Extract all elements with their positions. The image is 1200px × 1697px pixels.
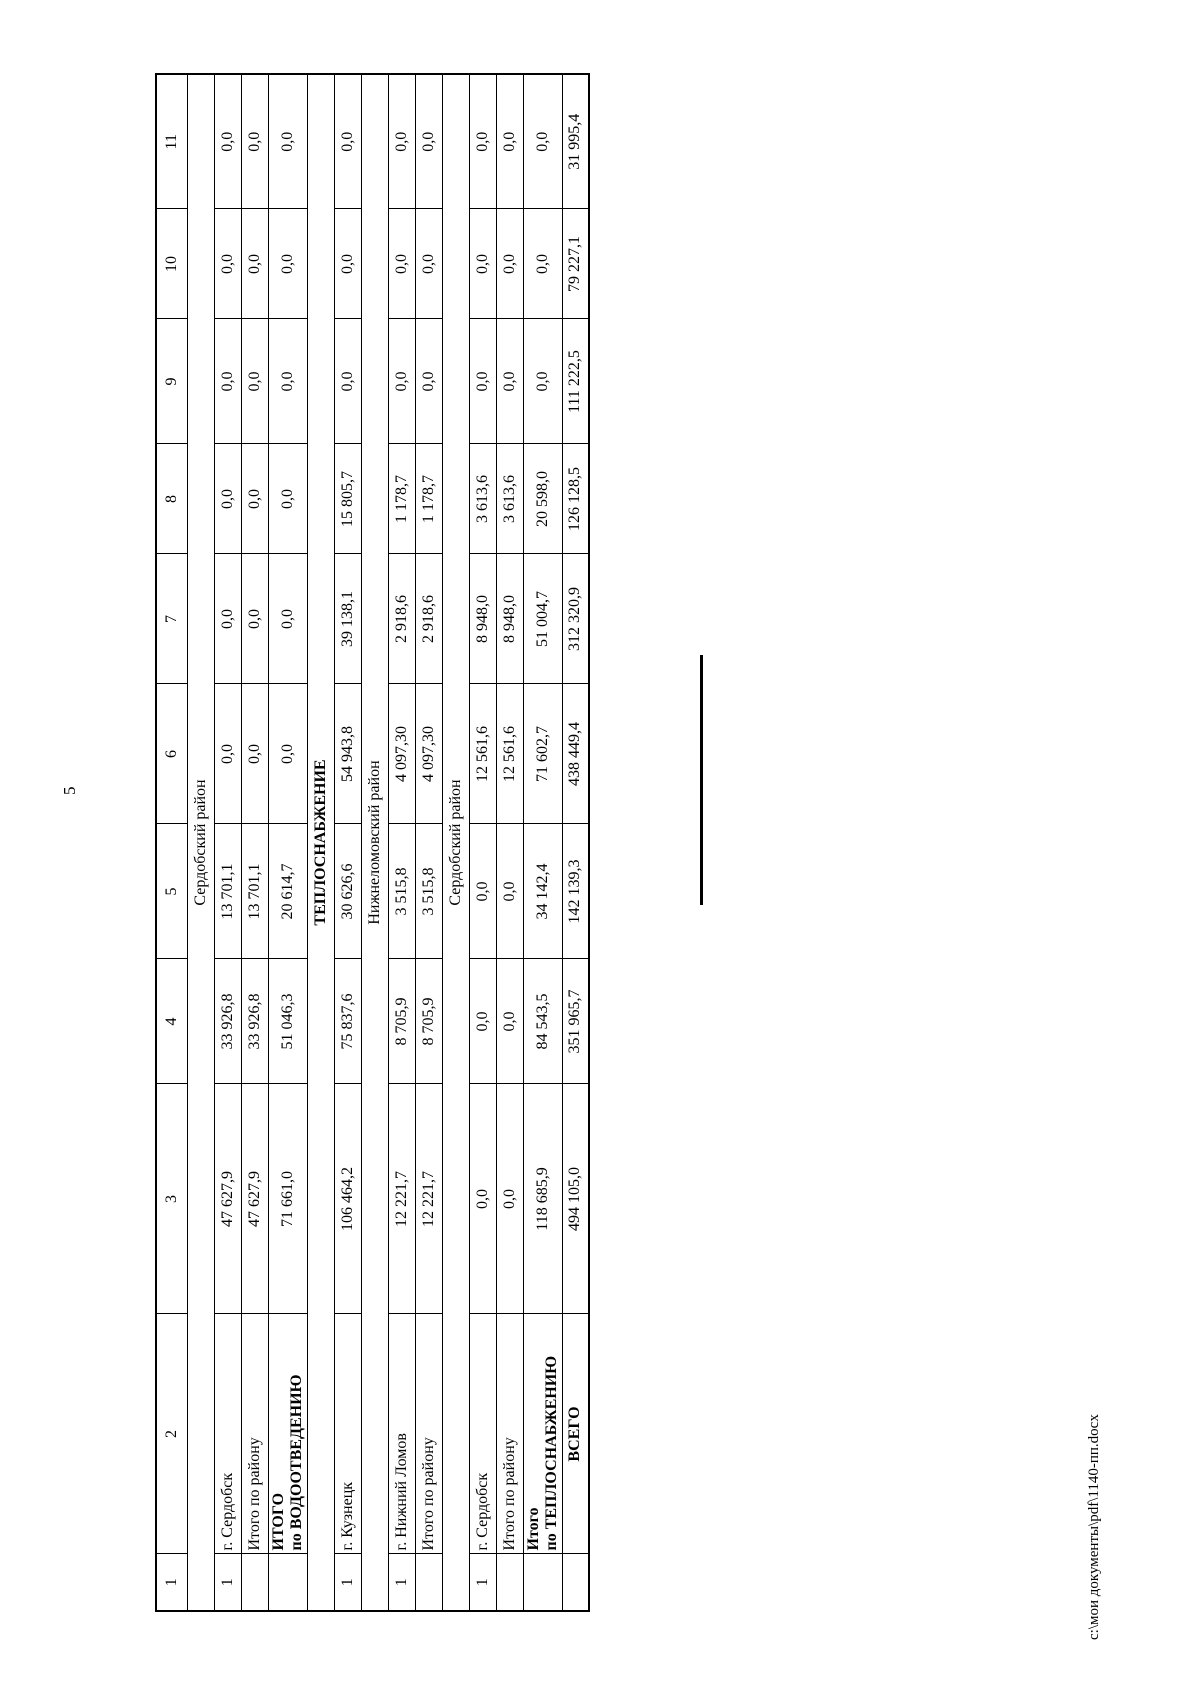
value-cell: 0,0 (388, 209, 415, 319)
row-number-cell (415, 1554, 442, 1611)
value-cell: 3 515,8 (388, 824, 415, 959)
table-row: Итого по району47 627,933 926,813 701,10… (242, 74, 269, 1611)
value-cell: 0,0 (269, 554, 308, 684)
value-cell: 47 627,9 (215, 1084, 242, 1314)
section-row: Сердобский район (442, 74, 469, 1611)
row-label-cell: г. Нижний Ломов (388, 1314, 415, 1554)
table-row: 1г. Кузнецк106 464,275 837,630 626,654 9… (334, 74, 361, 1611)
value-cell: 15 805,7 (334, 444, 361, 554)
table-row: Итогопо ТЕПЛОСНАБЖЕНИЮ118 685,984 543,53… (523, 74, 562, 1611)
section-label: ТЕПЛОСНАБЖЕНИЕ (307, 74, 334, 1611)
value-cell: 0,0 (469, 959, 496, 1084)
value-cell: 0,0 (469, 74, 496, 209)
value-cell: 0,0 (269, 684, 308, 824)
row-label-line: ИТОГО (270, 1318, 288, 1551)
value-cell: 51 046,3 (269, 959, 308, 1084)
value-cell: 312 320,9 (562, 554, 589, 684)
value-cell: 31 995,4 (562, 74, 589, 209)
header-row: 1234567891011 (156, 74, 188, 1611)
value-cell: 8 705,9 (415, 959, 442, 1084)
table-row: Итого по району0,00,00,012 561,68 948,03… (496, 74, 523, 1611)
row-label-cell: ИТОГОпо ВОДООТВЕДЕНИЮ (269, 1314, 308, 1554)
row-label-cell: г. Сердобск (215, 1314, 242, 1554)
value-cell: 34 142,4 (523, 824, 562, 959)
column-header: 1 (156, 1554, 188, 1611)
table-row: Итого по району12 221,78 705,93 515,84 0… (415, 74, 442, 1611)
value-cell: 3 613,6 (496, 444, 523, 554)
column-header: 8 (156, 444, 188, 554)
value-cell: 0,0 (496, 959, 523, 1084)
value-cell: 0,0 (469, 824, 496, 959)
value-cell: 0,0 (334, 74, 361, 209)
value-cell: 0,0 (215, 74, 242, 209)
row-label-cell: ВСЕГО (562, 1314, 589, 1554)
value-cell: 4 097,30 (388, 684, 415, 824)
value-cell: 0,0 (496, 319, 523, 444)
value-cell: 0,0 (496, 74, 523, 209)
table-row: 1г. Сердобск47 627,933 926,813 701,10,00… (215, 74, 242, 1611)
separator-line (700, 655, 703, 905)
value-cell: 12 561,6 (496, 684, 523, 824)
value-cell: 84 543,5 (523, 959, 562, 1084)
value-cell: 142 139,3 (562, 824, 589, 959)
value-cell: 0,0 (242, 209, 269, 319)
value-cell: 0,0 (469, 209, 496, 319)
row-number-cell (523, 1554, 562, 1611)
table-row: 1г. Сердобск0,00,00,012 561,68 948,03 61… (469, 74, 496, 1611)
value-cell: 1 178,7 (388, 444, 415, 554)
row-number-cell (496, 1554, 523, 1611)
value-cell: 0,0 (496, 1084, 523, 1314)
value-cell: 0,0 (415, 209, 442, 319)
value-cell: 0,0 (334, 319, 361, 444)
row-label-line: по ТЕПЛОСНАБЖЕНИЮ (543, 1318, 561, 1551)
value-cell: 47 627,9 (242, 1084, 269, 1314)
value-cell: 0,0 (269, 74, 308, 209)
row-label-cell: Итого по району (496, 1314, 523, 1554)
page-number: 5 (60, 787, 80, 796)
report-table: 1234567891011Сердобский район1г. Сердобс… (155, 73, 590, 1612)
row-label-line: Итого по району (501, 1318, 519, 1551)
value-cell: 0,0 (496, 824, 523, 959)
value-cell: 0,0 (215, 554, 242, 684)
row-number-cell: 1 (334, 1554, 361, 1611)
row-number-cell: 1 (388, 1554, 415, 1611)
column-header: 3 (156, 1084, 188, 1314)
row-label-line: г. Сердобск (474, 1318, 492, 1551)
row-number-cell (242, 1554, 269, 1611)
value-cell: 4 097,30 (415, 684, 442, 824)
value-cell: 0,0 (242, 319, 269, 444)
table-row: ИТОГОпо ВОДООТВЕДЕНИЮ71 661,051 046,320 … (269, 74, 308, 1611)
table-row: 1г. Нижний Ломов12 221,78 705,93 515,84 … (388, 74, 415, 1611)
value-cell: 0,0 (523, 319, 562, 444)
row-label-line: г. Сердобск (219, 1318, 237, 1551)
value-cell: 20 614,7 (269, 824, 308, 959)
value-cell: 13 701,1 (215, 824, 242, 959)
value-cell: 111 222,5 (562, 319, 589, 444)
value-cell: 12 561,6 (469, 684, 496, 824)
column-header: 2 (156, 1314, 188, 1554)
value-cell: 39 138,1 (334, 554, 361, 684)
column-header: 5 (156, 824, 188, 959)
row-label-cell: г. Кузнецк (334, 1314, 361, 1554)
value-cell: 33 926,8 (215, 959, 242, 1084)
value-cell: 0,0 (215, 444, 242, 554)
row-label-cell: Итого по району (242, 1314, 269, 1554)
column-header: 11 (156, 74, 188, 209)
value-cell: 20 598,0 (523, 444, 562, 554)
value-cell: 13 701,1 (242, 824, 269, 959)
value-cell: 0,0 (415, 74, 442, 209)
value-cell: 33 926,8 (242, 959, 269, 1084)
value-cell: 0,0 (415, 319, 442, 444)
value-cell: 118 685,9 (523, 1084, 562, 1314)
row-number-cell (269, 1554, 308, 1611)
value-cell: 0,0 (215, 319, 242, 444)
table-row: ВСЕГО494 105,0351 965,7142 139,3438 449,… (562, 74, 589, 1611)
value-cell: 71 661,0 (269, 1084, 308, 1314)
value-cell: 0,0 (242, 74, 269, 209)
value-cell: 0,0 (215, 684, 242, 824)
row-label-cell: Итогопо ТЕПЛОСНАБЖЕНИЮ (523, 1314, 562, 1554)
row-label-line: Итого по району (246, 1318, 264, 1551)
row-label-line: г. Кузнецк (339, 1318, 357, 1551)
value-cell: 0,0 (469, 319, 496, 444)
row-label-line: г. Нижний Ломов (393, 1318, 411, 1551)
value-cell: 2 918,6 (388, 554, 415, 684)
report-table-body: 1234567891011Сердобский район1г. Сердобс… (156, 74, 589, 1611)
value-cell: 126 128,5 (562, 444, 589, 554)
value-cell: 75 837,6 (334, 959, 361, 1084)
row-label-line: Итого по району (420, 1318, 438, 1551)
column-header: 7 (156, 554, 188, 684)
value-cell: 8 705,9 (388, 959, 415, 1084)
section-row: Сердобский район (188, 74, 215, 1611)
value-cell: 51 004,7 (523, 554, 562, 684)
row-label-cell: Итого по району (415, 1314, 442, 1554)
row-label-line: Итого (525, 1318, 543, 1551)
value-cell: 0,0 (523, 74, 562, 209)
value-cell: 30 626,6 (334, 824, 361, 959)
value-cell: 0,0 (269, 444, 308, 554)
value-cell: 0,0 (469, 1084, 496, 1314)
row-number-cell (562, 1554, 589, 1611)
column-header: 10 (156, 209, 188, 319)
section-label: Нижнеломовский район (361, 74, 388, 1611)
value-cell: 71 602,7 (523, 684, 562, 824)
value-cell: 54 943,8 (334, 684, 361, 824)
value-cell: 8 948,0 (469, 554, 496, 684)
value-cell: 0,0 (242, 444, 269, 554)
value-cell: 0,0 (388, 74, 415, 209)
value-cell: 79 227,1 (562, 209, 589, 319)
value-cell: 12 221,7 (415, 1084, 442, 1314)
column-header: 6 (156, 684, 188, 824)
value-cell: 0,0 (269, 319, 308, 444)
section-row: ТЕПЛОСНАБЖЕНИЕ (307, 74, 334, 1611)
value-cell: 0,0 (496, 209, 523, 319)
row-label-line: ВСЕГО (566, 1318, 584, 1551)
value-cell: 0,0 (215, 209, 242, 319)
section-row: Нижнеломовский район (361, 74, 388, 1611)
value-cell: 8 948,0 (496, 554, 523, 684)
value-cell: 494 105,0 (562, 1084, 589, 1314)
value-cell: 351 965,7 (562, 959, 589, 1084)
row-number-cell: 1 (215, 1554, 242, 1611)
value-cell: 3 613,6 (469, 444, 496, 554)
value-cell: 2 918,6 (415, 554, 442, 684)
value-cell: 0,0 (334, 209, 361, 319)
value-cell: 106 464,2 (334, 1084, 361, 1314)
section-label: Сердобский район (442, 74, 469, 1611)
section-label: Сердобский район (188, 74, 215, 1611)
row-label-cell: г. Сердобск (469, 1314, 496, 1554)
column-header: 4 (156, 959, 188, 1084)
row-label-line: по ВОДООТВЕДЕНИЮ (288, 1318, 306, 1551)
row-number-cell: 1 (469, 1554, 496, 1611)
value-cell: 1 178,7 (415, 444, 442, 554)
value-cell: 438 449,4 (562, 684, 589, 824)
document-path-footer: с:\мои документы\pdf\1140-пп.docx (1086, 1414, 1103, 1640)
value-cell: 0,0 (242, 684, 269, 824)
value-cell: 0,0 (242, 554, 269, 684)
value-cell: 0,0 (388, 319, 415, 444)
rotated-sheet: 5 1234567891011Сердобский район1г. Сердо… (0, 0, 1200, 1697)
value-cell: 0,0 (523, 209, 562, 319)
value-cell: 0,0 (269, 209, 308, 319)
value-cell: 12 221,7 (388, 1084, 415, 1314)
column-header: 9 (156, 319, 188, 444)
value-cell: 3 515,8 (415, 824, 442, 959)
